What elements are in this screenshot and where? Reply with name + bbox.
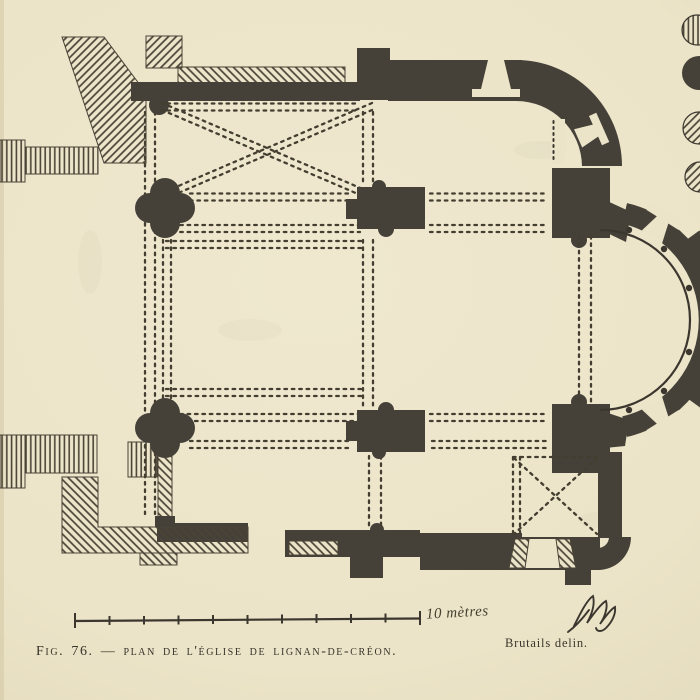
church-floor-plan-engraving bbox=[0, 0, 700, 700]
legend-solid-black-circle bbox=[682, 56, 700, 90]
northeast-niche bbox=[551, 119, 565, 164]
nave-piers bbox=[135, 178, 425, 459]
scanned-book-page: { "figure": { "caption": "Fig. 76. — pla… bbox=[0, 0, 700, 700]
figure-caption: Fig. 76. — plan de l'église de lignan-de… bbox=[36, 644, 506, 660]
crossing-pier-north bbox=[346, 180, 425, 237]
chapel-south-window bbox=[509, 539, 576, 568]
legend-symbol-circles bbox=[682, 15, 700, 192]
apse bbox=[600, 202, 700, 438]
vault-rib-lines bbox=[145, 103, 597, 535]
signature-monogram bbox=[568, 596, 615, 632]
scale-bar-label: 10 mètres bbox=[426, 603, 489, 623]
page-left-edge bbox=[0, 0, 4, 700]
draughtsman-credit: Brutails delin. bbox=[505, 636, 588, 651]
southwest-annex-walls bbox=[0, 435, 248, 565]
legend-diagonal-hatch-circle bbox=[685, 162, 700, 192]
north-annex-wall bbox=[0, 140, 98, 182]
scale-bar bbox=[75, 611, 420, 628]
legend-vertical-hatch-circle bbox=[682, 15, 700, 45]
north-wall-facing-strip bbox=[178, 67, 345, 83]
legend-diagonal-hatch-circle bbox=[683, 112, 700, 144]
crossing-pier-south bbox=[346, 402, 425, 459]
south-wall-old-masonry-patch bbox=[289, 541, 338, 555]
